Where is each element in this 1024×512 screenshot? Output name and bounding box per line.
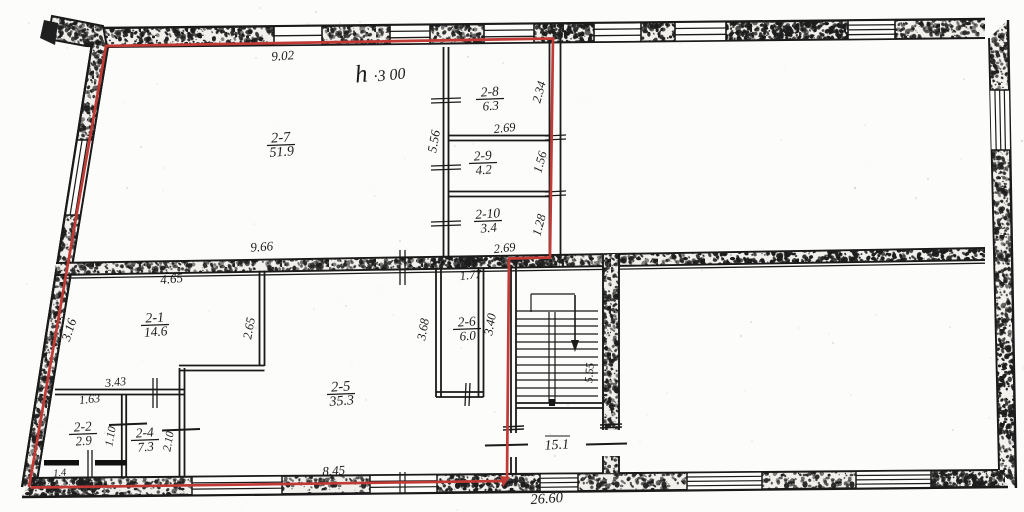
svg-text:6.3: 6.3 bbox=[482, 97, 500, 113]
svg-text:·3 00: ·3 00 bbox=[373, 65, 407, 85]
svg-text:2.69: 2.69 bbox=[493, 240, 517, 256]
svg-text:9.66: 9.66 bbox=[250, 238, 274, 255]
svg-text:1.77: 1.77 bbox=[459, 267, 483, 283]
svg-text:8.45: 8.45 bbox=[322, 462, 346, 479]
svg-text:1.63: 1.63 bbox=[78, 391, 100, 407]
svg-text:15.1: 15.1 bbox=[544, 437, 569, 453]
svg-text:2.69: 2.69 bbox=[493, 120, 517, 136]
svg-text:4.2: 4.2 bbox=[475, 161, 493, 177]
svg-text:14.6: 14.6 bbox=[143, 323, 168, 340]
svg-text:3.4: 3.4 bbox=[479, 219, 498, 235]
svg-text:4.65: 4.65 bbox=[159, 270, 184, 287]
svg-text:26.60: 26.60 bbox=[530, 490, 564, 508]
svg-text:7.3: 7.3 bbox=[137, 438, 155, 454]
svg-text:2.9: 2.9 bbox=[75, 432, 93, 448]
svg-text:9.02: 9.02 bbox=[271, 47, 295, 64]
svg-text:35.3: 35.3 bbox=[328, 393, 354, 410]
svg-text:1.4: 1.4 bbox=[53, 467, 68, 479]
svg-text:51.9: 51.9 bbox=[269, 144, 294, 161]
svg-text:3.43: 3.43 bbox=[103, 374, 126, 390]
svg-text:6.0: 6.0 bbox=[459, 327, 477, 343]
svg-text:5.55: 5.55 bbox=[583, 362, 597, 383]
